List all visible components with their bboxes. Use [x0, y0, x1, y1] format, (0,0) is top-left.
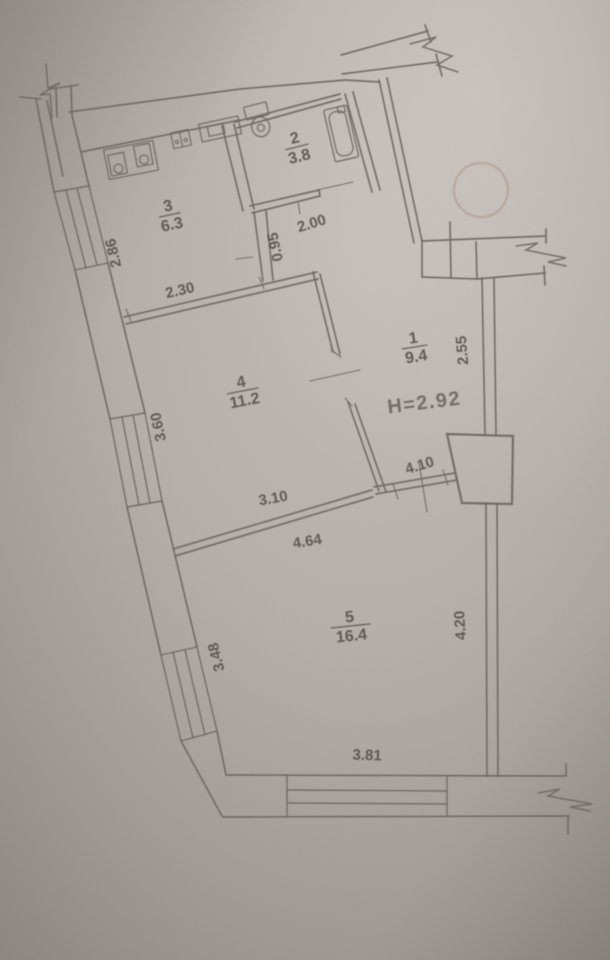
- svg-text:3.81: 3.81: [352, 746, 382, 764]
- svg-text:16.4: 16.4: [335, 626, 368, 646]
- svg-text:2.55: 2.55: [453, 335, 472, 366]
- svg-text:9.4: 9.4: [404, 347, 429, 367]
- svg-text:5: 5: [344, 609, 355, 627]
- svg-text:4.20: 4.20: [451, 610, 470, 640]
